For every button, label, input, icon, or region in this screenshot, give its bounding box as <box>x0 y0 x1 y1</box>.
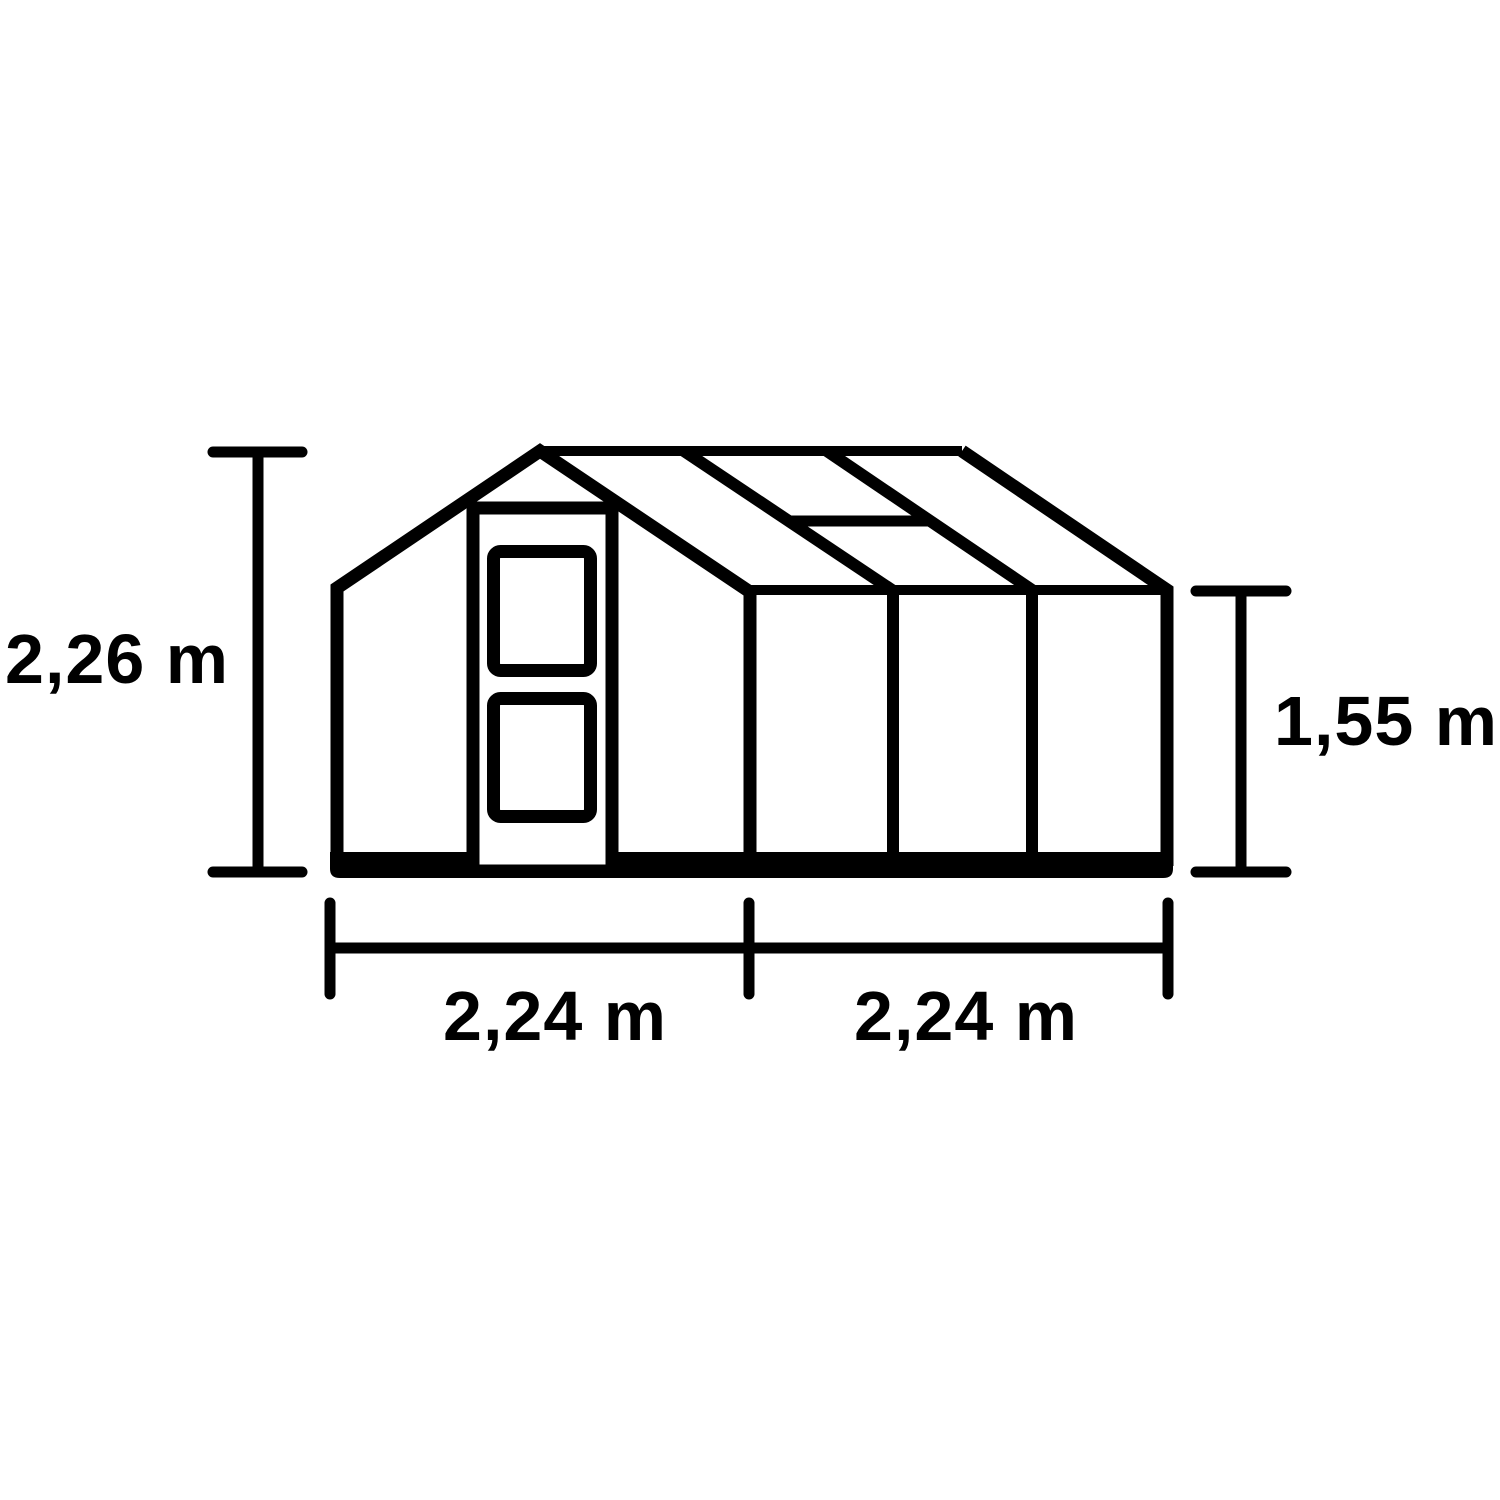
door <box>473 508 612 871</box>
dimension-left-height: 2,26 m <box>5 452 302 872</box>
door-window-upper <box>494 552 591 671</box>
dimension-bottom-right-label: 2,24 m <box>854 977 1078 1055</box>
roof-right-edge-and-rear-wall <box>962 451 1167 866</box>
dimension-left-label: 2,26 m <box>5 620 229 698</box>
base-band <box>330 852 1173 878</box>
greenhouse-dimension-diagram: 2,26 m 1,55 m 2,24 m 2,24 m <box>0 0 1500 1500</box>
dimension-bottom: 2,24 m 2,24 m <box>330 903 1168 1055</box>
greenhouse-drawing <box>330 451 1173 878</box>
diagram-canvas: 2,26 m 1,55 m 2,24 m 2,24 m <box>0 0 1500 1500</box>
dimension-right-height: 1,55 m <box>1196 591 1498 872</box>
door-window-lower <box>494 699 591 817</box>
dimension-bottom-left-label: 2,24 m <box>443 977 667 1055</box>
dimension-right-label: 1,55 m <box>1274 682 1498 760</box>
